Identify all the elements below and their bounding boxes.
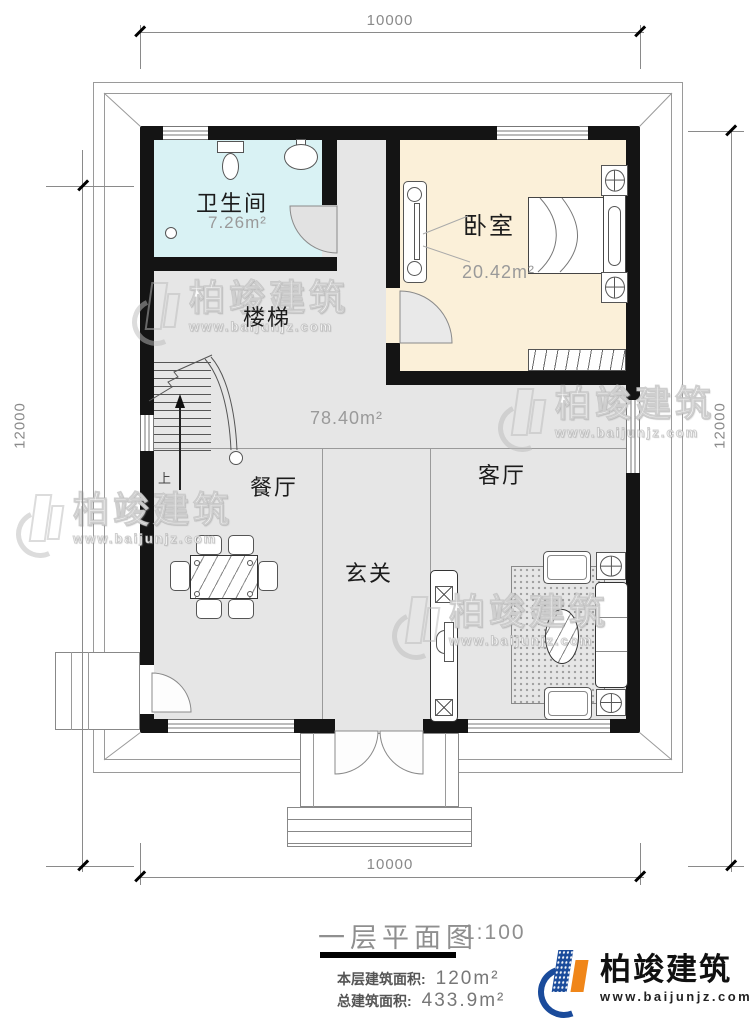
foyer-left-line (322, 449, 323, 719)
stair-up-arrowhead (175, 394, 185, 408)
left-step-line-1 (71, 652, 72, 730)
tv-cabinet-box-top (435, 586, 453, 603)
total-area-label: 总建筑面积: (337, 991, 412, 1011)
dim-top-value: 10000 (340, 12, 440, 29)
dim-line-top (138, 32, 644, 33)
brand-block: 柏竣建筑 www.baijunjz.com (538, 946, 750, 1012)
brand-name: 柏竣建筑 (600, 954, 750, 985)
living-label: 客厅 (478, 458, 526, 490)
table-dot-3 (194, 591, 200, 597)
dim-left-value: 12000 (12, 394, 29, 458)
porch-column-line-right (445, 733, 446, 807)
living-window (468, 719, 610, 733)
wall-right-lower (626, 473, 640, 733)
bathroom-area: 7.26m² (208, 213, 267, 233)
wardrobe (528, 349, 626, 371)
dining-chair-2 (228, 535, 254, 555)
dining-chair-3 (196, 599, 222, 619)
side-table-bottom (596, 689, 626, 716)
table-dot-4 (247, 591, 253, 597)
wall-right-upper (626, 126, 640, 400)
brand-url: www.baijunjz.com (600, 989, 750, 1004)
dining-chair-5 (170, 561, 190, 591)
left-step-line-2 (88, 652, 89, 730)
tv-mount (436, 630, 445, 654)
hall-east-window (626, 400, 640, 473)
stair-up-label: 上 (158, 468, 173, 487)
toilet-tank (217, 141, 244, 153)
hall-area: 78.40m² (310, 408, 383, 429)
dim-ext-right-bottom (688, 866, 744, 867)
foyer-label: 玄关 (345, 556, 393, 588)
dining-window (168, 719, 294, 733)
drawing-scale: 1:100 (463, 921, 526, 945)
dim-line-right (731, 128, 732, 872)
dining-chair-6 (258, 561, 278, 591)
bed-pillow (608, 206, 621, 266)
bedroom-tv-screen (414, 203, 420, 260)
dim-bottom-value: 10000 (340, 856, 440, 873)
left-side-step (55, 652, 140, 730)
stair-up-arrow-line (179, 406, 181, 490)
bathroom-window (163, 126, 208, 140)
entry-steps (287, 807, 472, 847)
stair-window (140, 415, 154, 451)
hall-partition-line (154, 448, 626, 449)
dining-chair-1 (196, 535, 222, 555)
dim-ext-bottom-right (640, 843, 641, 885)
dim-ext-bottom-left (140, 843, 141, 885)
bedroom-window (497, 126, 588, 140)
dining-chair-4 (228, 599, 254, 619)
front-door-threshold (335, 719, 423, 733)
dim-ext-left-top (46, 186, 134, 187)
bathroom-east-wall (322, 140, 337, 205)
wall-bottom-4 (610, 719, 640, 733)
floor-area-row: 本层建筑面积: 120m² (337, 968, 500, 990)
nightstand-bottom (601, 272, 628, 303)
bedroom-label: 卧室 (463, 206, 515, 241)
coffee-table (545, 609, 579, 664)
bedroom-area: 20.42m² (462, 262, 535, 283)
stairs-label: 楼梯 (243, 300, 291, 332)
armchair-top (543, 551, 591, 584)
bedroom-west-wall-stub (386, 343, 400, 371)
tv-screen (444, 622, 454, 662)
side-table-top (596, 552, 626, 580)
floor-area-label: 本层建筑面积: (337, 969, 426, 989)
table-dot-2 (247, 560, 253, 566)
dining-label: 餐厅 (250, 470, 298, 502)
bedroom-tv-speaker-bottom (407, 261, 422, 276)
entry-porch (300, 733, 459, 807)
wall-bottom-1 (140, 719, 170, 733)
drawing-title: 一层平面图 (318, 916, 478, 955)
dim-ext-left-bottom (46, 866, 134, 867)
wall-left-mid (140, 451, 154, 665)
armchair-bottom (544, 687, 592, 720)
floor-plan-sheet: 柏竣建筑 www.baijunjz.com 柏竣建筑 www.baijunjz.… (0, 0, 750, 1030)
watermark-logo-icon (16, 492, 66, 554)
floor-area-value: 120m² (436, 968, 500, 990)
dim-line-bottom (138, 877, 644, 878)
bathroom-sink (284, 144, 318, 170)
dim-line-left (82, 150, 83, 872)
bedroom-south-wall (386, 371, 640, 385)
nightstand-top (601, 165, 628, 196)
toilet-bowl (222, 153, 239, 180)
total-area-value: 433.9m² (422, 990, 506, 1012)
total-area-row: 总建筑面积: 433.9m² (337, 990, 505, 1012)
wall-bottom-2 (293, 719, 335, 733)
porch-column-line-left (313, 733, 314, 807)
bathroom-south-wall (140, 257, 337, 271)
bedroom-door-gap (386, 288, 400, 343)
bathroom-door-gap (322, 205, 337, 257)
sofa (595, 582, 628, 688)
bedroom-tv-speaker-top (407, 187, 422, 202)
bedroom-west-wall (386, 140, 400, 288)
dim-right-value: 12000 (712, 394, 729, 458)
floor-drain (165, 227, 177, 239)
dim-ext-right-top (688, 131, 744, 132)
brand-logo-icon (538, 946, 592, 1012)
wall-left-upper (140, 126, 154, 416)
table-dot-1 (194, 560, 200, 566)
bed-mattress (528, 197, 604, 274)
title-underline (320, 952, 456, 958)
tv-cabinet-box-bottom (435, 699, 453, 716)
